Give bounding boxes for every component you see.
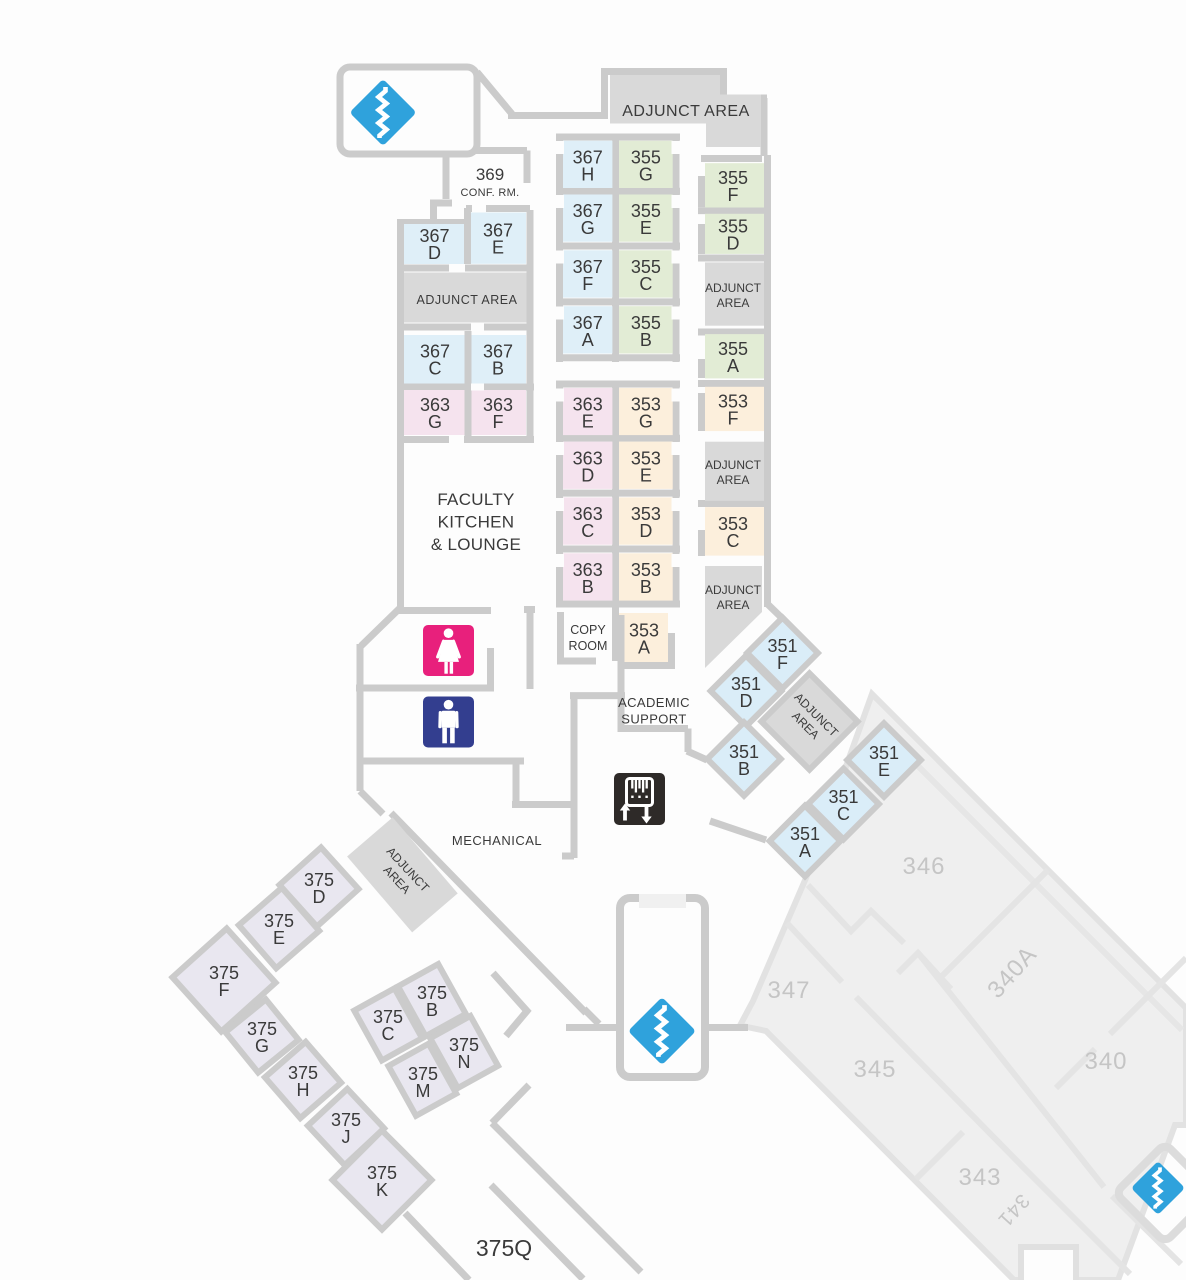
svg-text:CONF. RM.: CONF. RM.: [461, 187, 520, 199]
svg-text:ACADEMICSUPPORT: ACADEMICSUPPORT: [618, 695, 690, 727]
svg-text:345: 345: [853, 1056, 896, 1083]
svg-text:ADJUNCT AREA: ADJUNCT AREA: [417, 293, 518, 307]
svg-text:375Q: 375Q: [476, 1235, 532, 1261]
svg-text:340: 340: [1084, 1048, 1127, 1075]
svg-text:ADJUNCT AREA: ADJUNCT AREA: [622, 103, 750, 120]
svg-text:MECHANICAL: MECHANICAL: [452, 833, 542, 848]
svg-text:369: 369: [476, 165, 504, 184]
svg-text:FACULTYKITCHEN& LOUNGE: FACULTYKITCHEN& LOUNGE: [431, 490, 521, 554]
svg-text:343: 343: [958, 1164, 1001, 1191]
svg-text:347: 347: [767, 977, 810, 1004]
svg-text:346: 346: [902, 853, 945, 880]
